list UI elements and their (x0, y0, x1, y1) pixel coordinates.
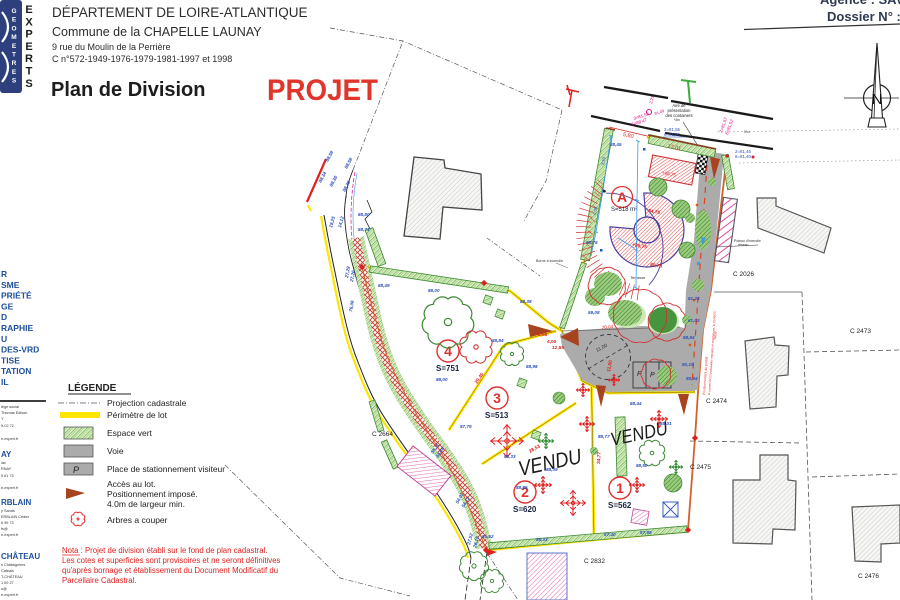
svg-text:e-expert.fr: e-expert.fr (1, 437, 19, 441)
svg-text:Cafeals: Cafeals (1, 569, 14, 573)
svg-text:C n°572-1949-1976-1979-1981-19: C n°572-1949-1976-1979-1981-1997 et 1998 (52, 54, 232, 64)
svg-text:55,52: 55,52 (482, 534, 494, 539)
svg-text:Arbres a couper: Arbres a couper (107, 515, 168, 525)
svg-text:57,98: 57,98 (640, 530, 652, 535)
svg-text:87,79: 87,79 (460, 424, 472, 429)
svg-text:86,00: 86,00 (428, 288, 440, 293)
svg-text:34,77: 34,77 (596, 451, 603, 464)
svg-text:C 2475: C 2475 (690, 464, 711, 471)
svg-text:58,33: 58,33 (536, 537, 548, 542)
svg-text:fs@: fs@ (1, 527, 8, 531)
svg-text:81,24: 81,24 (688, 296, 700, 301)
svg-text:88,85: 88,85 (516, 485, 528, 490)
svg-text:Agence : SAVENAY: Agence : SAVENAY (820, 0, 900, 7)
svg-text:P: P (25, 29, 32, 41)
svg-text:e-expert.fr: e-expert.fr (1, 486, 19, 490)
svg-text:RAPHIE: RAPHIE (1, 323, 33, 333)
svg-text:SME: SME (1, 280, 20, 290)
svg-text:DÉPARTEMENT DE LOIRE-ATLANTIQU: DÉPARTEMENT DE LOIRE-ATLANTIQUE (52, 5, 308, 20)
svg-text:O: O (11, 25, 16, 32)
svg-text:S=751: S=751 (436, 364, 460, 373)
svg-text:DES-VRD: DES-VRD (1, 345, 39, 355)
svg-text:R: R (12, 60, 17, 67)
svg-text:Parcellaire Cadastral.: Parcellaire Cadastral. (62, 576, 137, 585)
svg-text:E: E (12, 69, 17, 76)
svg-text:12,55: 12,55 (552, 345, 564, 351)
svg-text:*4m: *4m (674, 118, 680, 122)
svg-text:C 2476: C 2476 (858, 573, 879, 580)
svg-text:S: S (25, 78, 32, 90)
svg-text:3: 3 (493, 390, 501, 406)
svg-text:X: X (25, 16, 33, 28)
svg-text:E: E (25, 4, 32, 16)
svg-text:Commune de la CHAPELLE LAUNAY: Commune de la CHAPELLE LAUNAY (52, 25, 262, 39)
svg-text:R: R (1, 269, 7, 279)
svg-text:Accès au lot.: Accès au lot. (107, 479, 156, 489)
svg-text:C 2474: C 2474 (706, 398, 727, 405)
svg-text:Mur: Mur (744, 130, 751, 134)
svg-text:88,98: 88,98 (526, 364, 538, 369)
svg-text:u@: u@ (1, 587, 7, 591)
svg-text:T: T (12, 52, 16, 59)
svg-text:59,08: 59,08 (588, 310, 600, 315)
svg-text:9 rue du Moulin de la Perrière: 9 rue du Moulin de la Perrière (52, 42, 171, 52)
svg-text:T-CHÂTEAU: T-CHÂTEAU (1, 574, 23, 579)
svg-text:88,44: 88,44 (630, 401, 642, 406)
svg-text:C 2832: C 2832 (584, 558, 605, 565)
svg-text:88,84: 88,84 (492, 338, 504, 343)
svg-text:88,71: 88,71 (358, 227, 370, 232)
svg-text:88,31: 88,31 (660, 421, 672, 426)
svg-text:4,00: 4,00 (547, 339, 557, 345)
svg-text:4.0m de largeur min.: 4.0m de largeur min. (107, 499, 185, 509)
svg-text:88,33: 88,33 (504, 454, 516, 459)
svg-text:réseau: réseau (738, 243, 748, 247)
svg-text:88,49: 88,49 (378, 283, 390, 288)
svg-text:Projection cadastrale: Projection cadastrale (107, 398, 187, 408)
svg-text:CHÂTEAU: CHÂTEAU (1, 552, 40, 561)
svg-text:E: E (25, 41, 32, 53)
svg-text:S=620: S=620 (513, 505, 537, 514)
svg-text:Les cotes et superficies sont: Les cotes et superficies sont provisoire… (62, 556, 281, 565)
svg-text:1: 1 (616, 480, 624, 496)
svg-text:88,45: 88,45 (610, 142, 622, 147)
svg-text:80,15: 80,15 (682, 362, 694, 367)
svg-text:Nota : Projet de division étab: Nota : Projet de division établi sur le … (62, 546, 267, 555)
svg-text:IL: IL (1, 377, 9, 387)
svg-text:y Sands: y Sands (1, 509, 15, 513)
svg-text:N: N (872, 91, 883, 108)
svg-text:M: M (11, 34, 16, 41)
svg-text:e-expert.fr: e-expert.fr (1, 533, 19, 537)
svg-text:6,66: 6,66 (538, 332, 548, 338)
svg-text:Borne à incendie: Borne à incendie (536, 259, 563, 263)
svg-text:LÉGENDE: LÉGENDE (68, 381, 117, 394)
svg-text:ERBLAIN Cédex: ERBLAIN Cédex (1, 515, 29, 519)
svg-text:P: P (73, 465, 79, 475)
svg-text:D: D (1, 312, 7, 322)
svg-text:PROJET: PROJET (267, 74, 378, 107)
svg-text:TISE: TISE (1, 355, 20, 365)
svg-text:E: E (12, 17, 17, 24)
svg-text:6=81,40: 6=81,40 (735, 154, 752, 159)
svg-text:S=513: S=513 (485, 411, 509, 420)
svg-text:88,39: 88,39 (546, 467, 558, 472)
svg-text:1 00 27: 1 00 27 (1, 581, 14, 585)
svg-text:88,50: 88,50 (636, 463, 648, 468)
svg-text:RNAY: RNAY (1, 467, 12, 471)
svg-text:RBLAIN: RBLAIN (1, 498, 31, 507)
svg-text:Plan de Division: Plan de Division (51, 79, 205, 101)
svg-text:88,80: 88,80 (358, 212, 370, 217)
svg-text:88,38: 88,38 (520, 299, 532, 304)
svg-text:GE: GE (1, 301, 14, 311)
svg-text:85,94: 85,94 (686, 376, 698, 381)
svg-text:6=81,50: 6=81,50 (664, 132, 681, 137)
svg-text:Thomas Edison: Thomas Edison (1, 411, 27, 415)
svg-text:6 99 73: 6 99 73 (1, 521, 14, 525)
svg-text:9-02 72: 9-02 72 (1, 424, 14, 428)
svg-text:P: P (650, 372, 655, 379)
svg-text:Dossier N° : S: Dossier N° : S (827, 9, 900, 24)
svg-text:Espace vert: Espace vert (107, 428, 153, 438)
svg-text:iac: iac (1, 461, 6, 465)
svg-text:C 2664: C 2664 (372, 431, 393, 438)
svg-text:Terrasse: Terrasse (630, 275, 646, 280)
svg-text:R: R (25, 53, 33, 65)
svg-text:e-expert.fr: e-expert.fr (1, 593, 19, 597)
svg-text:88,00: 88,00 (436, 377, 448, 382)
svg-text:A: A (617, 189, 627, 205)
svg-text:88,94: 88,94 (683, 335, 695, 340)
svg-text:Voie: Voie (107, 446, 124, 456)
svg-text:C 2473: C 2473 (850, 328, 871, 335)
svg-text:Place de stationnement visiteu: Place de stationnement visiteur (107, 464, 225, 474)
svg-text:qu'après bornage et établissem: qu'après bornage et établissement du Doc… (62, 566, 278, 575)
svg-text:AY: AY (1, 450, 12, 459)
svg-text:s Châtaigniers: s Châtaigniers (1, 563, 25, 567)
svg-text:78639: 78639 (713, 331, 718, 340)
svg-text:S=562: S=562 (608, 501, 632, 510)
svg-text:PRIÉTÉ: PRIÉTÉ (1, 291, 32, 301)
svg-text:C 2026: C 2026 (733, 271, 754, 278)
svg-text:G: G (11, 8, 16, 15)
svg-text:T: T (26, 66, 33, 78)
svg-text:TATION: TATION (1, 366, 31, 376)
svg-text:iège social: iège social (1, 405, 19, 409)
svg-text:20,04: 20,04 (602, 324, 614, 330)
svg-text:E: E (12, 43, 17, 50)
svg-text:88,75: 88,75 (586, 240, 598, 245)
svg-text:88,77: 88,77 (598, 434, 610, 439)
svg-text:Positionnement imposé.: Positionnement imposé. (107, 489, 198, 499)
svg-text:U: U (1, 334, 7, 344)
svg-text:S: S (12, 78, 17, 85)
svg-text:4: 4 (444, 343, 452, 359)
svg-text:57,40: 57,40 (604, 532, 616, 537)
svg-text:5 61 73: 5 61 73 (1, 474, 14, 478)
svg-text:S=518 m²: S=518 m² (611, 207, 637, 213)
svg-text:Périmètre de lot: Périmètre de lot (107, 410, 168, 420)
svg-text:61,02: 61,02 (688, 318, 700, 323)
